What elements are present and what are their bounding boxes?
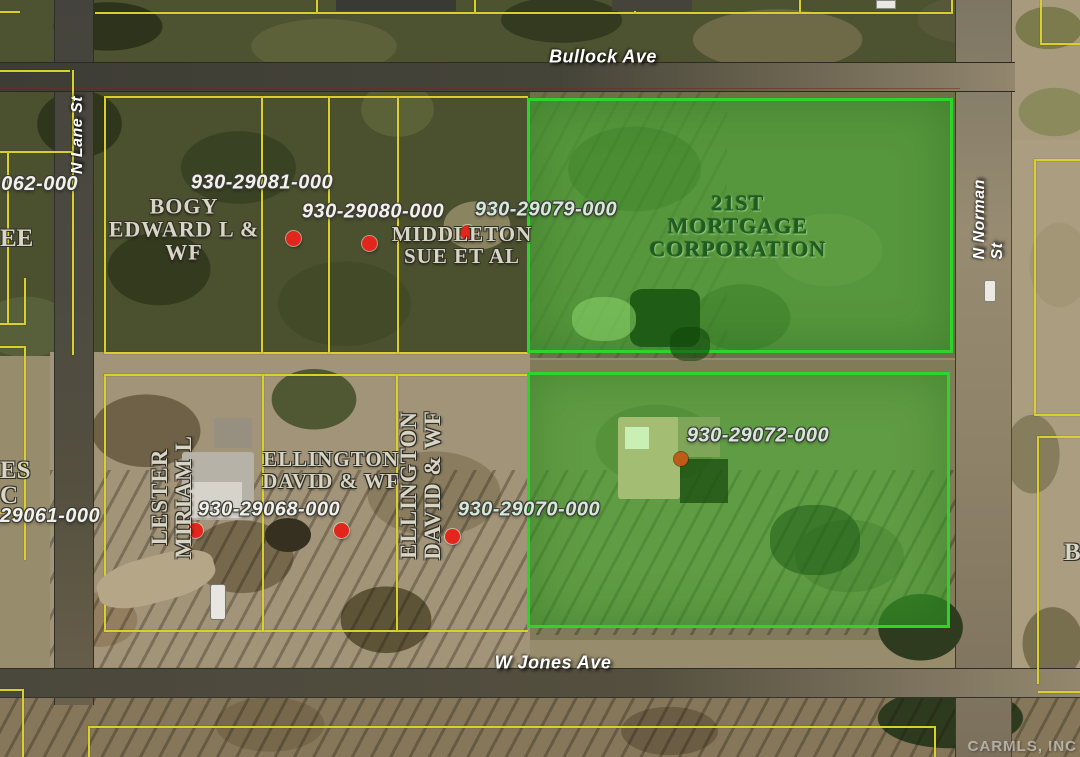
parcel-boundary-line bbox=[1040, 0, 1042, 44]
tree-canopy bbox=[0, 0, 1080, 66]
watermark: CARMLS, INC bbox=[968, 738, 1077, 755]
parcel-boundary-line bbox=[22, 689, 24, 757]
owner-label-cut: B bbox=[1064, 540, 1080, 565]
parcel-boundary-line bbox=[0, 11, 20, 13]
parcel-number-label: 930-29081-000 bbox=[191, 172, 333, 195]
terrain-texture bbox=[1012, 0, 1080, 757]
parcel-boundary-line bbox=[474, 0, 476, 13]
parcel-boundary-line bbox=[1037, 436, 1039, 684]
parcel-boundary-line bbox=[1034, 414, 1080, 416]
parcel-boundary-line bbox=[0, 689, 23, 691]
parcel-boundary-line bbox=[0, 70, 70, 72]
parcel-boundary-line bbox=[72, 70, 74, 355]
parcel-boundary-line bbox=[634, 0, 636, 13]
terrain-texture bbox=[0, 692, 1080, 757]
terrain-texture bbox=[50, 352, 530, 667]
owner-label: ELLINGTON DAVID & WF bbox=[262, 449, 400, 493]
selected-parcel-point-marker[interactable] bbox=[674, 452, 688, 466]
driveway bbox=[92, 541, 220, 616]
terrain-texture bbox=[572, 297, 636, 341]
parcel-boundary-line bbox=[951, 0, 953, 13]
truck bbox=[984, 280, 996, 302]
parcel-boundary-line bbox=[0, 323, 26, 325]
tree-shadow-texture bbox=[50, 470, 530, 670]
parcel-number-label-cut: -062-000 bbox=[0, 173, 78, 196]
owner-label-vertical: LESTER MIRIAM L bbox=[148, 435, 196, 559]
parcel-boundary-line bbox=[88, 726, 936, 728]
aerial-parcel-map[interactable]: 930-29081-000 930-29080-000 930-29079-00… bbox=[0, 0, 1080, 757]
tree-canopy bbox=[770, 505, 860, 575]
parcel-boundary-line bbox=[328, 96, 330, 354]
parcel-boundary-line bbox=[104, 374, 528, 376]
street-label-bullock-ave: Bullock Ave bbox=[549, 47, 657, 68]
parcel-number-label: 930-29080-000 bbox=[302, 201, 444, 224]
parcel-point-marker[interactable] bbox=[362, 236, 377, 251]
parcel-boundary-line bbox=[104, 96, 106, 354]
parcel-boundary-line bbox=[24, 346, 26, 560]
terrain-texture bbox=[955, 0, 1080, 140]
parcel-boundary-line bbox=[1040, 43, 1080, 45]
road-bullock-ave bbox=[0, 62, 1015, 92]
building-roof bbox=[336, 0, 456, 11]
parcel-boundary-line bbox=[261, 96, 263, 354]
house-roof bbox=[190, 482, 242, 518]
highlighted-parcel-21st-mortgage[interactable] bbox=[527, 98, 953, 353]
owner-label-cut: EE bbox=[0, 226, 33, 251]
parcel-number-label-cut: 29061-000 bbox=[0, 505, 100, 528]
shed-roof bbox=[214, 418, 252, 448]
house-roof bbox=[678, 417, 720, 457]
parcel-point-marker[interactable] bbox=[188, 523, 203, 538]
parcel-boundary-line bbox=[934, 726, 936, 757]
parcel-boundary-line bbox=[1034, 159, 1036, 416]
parcel-boundary-line bbox=[0, 346, 26, 348]
house-roof bbox=[618, 417, 680, 499]
car bbox=[210, 584, 226, 620]
parcel-boundary-line bbox=[88, 726, 90, 757]
parcel-point-marker[interactable] bbox=[445, 529, 460, 544]
parcel-boundary-line bbox=[104, 630, 528, 632]
road-n-lane-st bbox=[54, 0, 94, 705]
parcel-boundary-line bbox=[95, 12, 953, 14]
parcel-boundary-line bbox=[397, 96, 399, 354]
parcel-boundary-line bbox=[7, 153, 9, 325]
terrain-texture bbox=[670, 327, 710, 361]
tree-shadow-texture bbox=[0, 692, 1080, 757]
parcel-boundary-line bbox=[104, 374, 106, 632]
parcel-boundary-line bbox=[0, 151, 73, 153]
tree-canopy bbox=[680, 459, 728, 503]
owner-label-cut: ES C bbox=[0, 458, 31, 508]
highlighted-parcel-930-29072[interactable] bbox=[527, 372, 950, 628]
building-roof bbox=[630, 289, 700, 347]
parcel-boundary-line bbox=[0, 512, 18, 514]
parcel-number-label: 930-29068-000 bbox=[198, 499, 340, 522]
house-roof bbox=[182, 452, 254, 520]
building-roof bbox=[612, 0, 692, 11]
parcel-boundary-line bbox=[396, 374, 398, 632]
parcel-point-marker[interactable] bbox=[460, 225, 475, 240]
street-label-n-norman-st: N Norman St bbox=[971, 169, 1007, 260]
parcel-point-marker[interactable] bbox=[286, 231, 301, 246]
parcel-boundary-line bbox=[1037, 436, 1080, 438]
owner-label: BOGY EDWARD L & WF bbox=[109, 196, 260, 265]
tree-canopy bbox=[0, 66, 530, 356]
street-label-n-lane-st: N Lane St bbox=[69, 96, 87, 174]
road-centerline bbox=[0, 88, 960, 89]
road-n-norman-st bbox=[955, 0, 1012, 757]
parcel-boundary-line bbox=[24, 278, 26, 325]
parcel-boundary-line bbox=[1034, 159, 1080, 161]
parcel-point-marker[interactable] bbox=[334, 523, 349, 538]
parcel-boundary-line bbox=[104, 352, 528, 354]
parcel-boundary-line bbox=[316, 0, 318, 13]
owner-label-vertical: ELLINGTON DAVID & WF bbox=[397, 410, 445, 560]
road-w-jones-ave bbox=[0, 668, 1080, 698]
parcel-boundary-line bbox=[104, 96, 528, 98]
pond bbox=[265, 518, 311, 552]
parcel-boundary-line bbox=[262, 374, 264, 632]
street-label-w-jones-ave: W Jones Ave bbox=[495, 653, 612, 674]
parcel-boundary-line bbox=[1038, 691, 1080, 693]
truck bbox=[876, 0, 896, 9]
parcel-boundary-line bbox=[799, 0, 801, 13]
house-roof bbox=[625, 427, 649, 449]
